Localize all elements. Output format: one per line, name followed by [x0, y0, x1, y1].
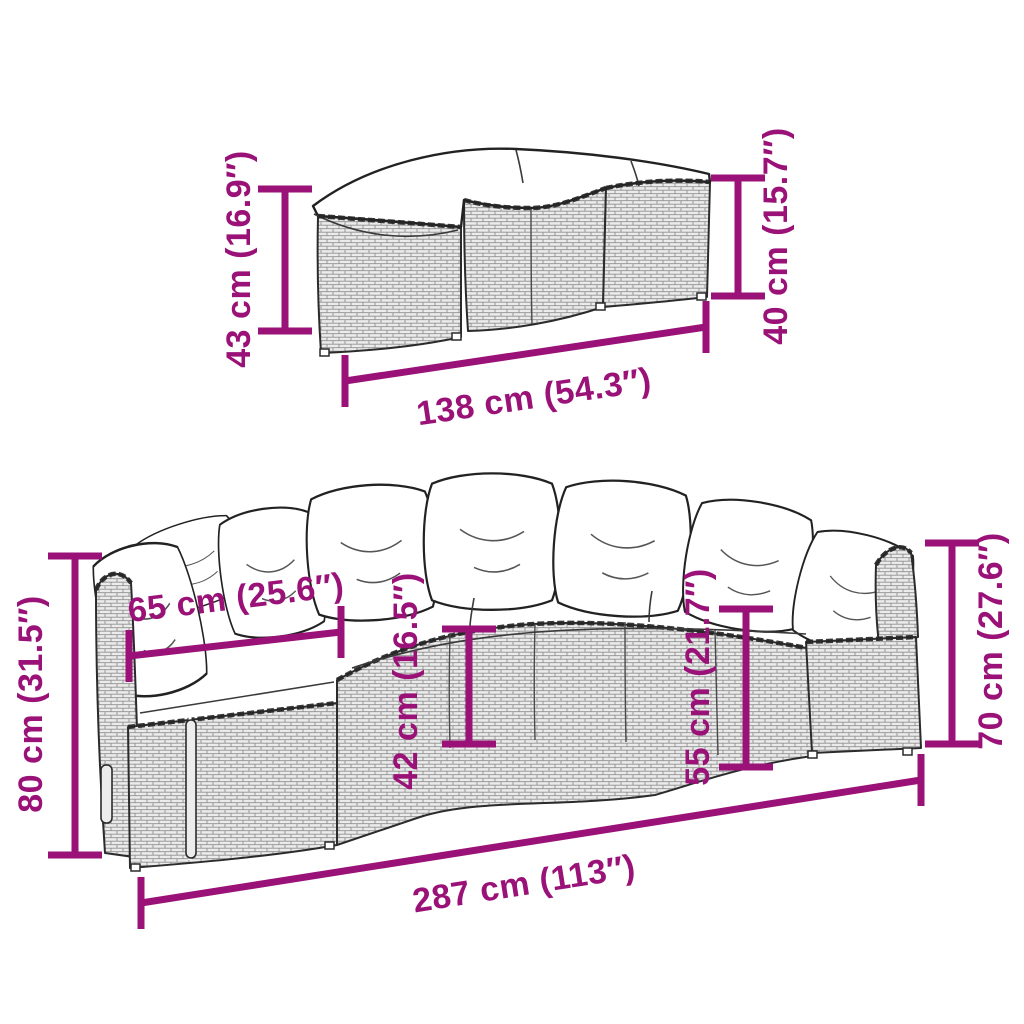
product-dimension-diagram: 43 cm (16.9″) 40 cm (15.7″) 138 cm (54.3… [0, 0, 1024, 1024]
sofa-foot [325, 842, 334, 849]
back-pillow [424, 473, 561, 609]
sofa-foot [808, 751, 817, 758]
dimension-label-43cm: 43 cm (16.9″) [220, 150, 258, 367]
top-module-foot [320, 349, 329, 356]
dimension-40cm: 40 cm (15.7″) [711, 127, 795, 344]
top-module-foot [452, 333, 461, 340]
top-module-right-wall [603, 181, 710, 307]
dimension-label-80cm: 80 cm (31.5″) [12, 595, 50, 812]
top-module-drawing [313, 149, 710, 356]
sofa-foot [903, 748, 912, 755]
top-module-left-wall [318, 216, 461, 353]
sofa-left-module [128, 703, 337, 868]
sofa-leg [186, 720, 196, 858]
dimension-70cm: 70 cm (27.6″) [925, 532, 1010, 749]
top-module-foot [697, 293, 706, 300]
sofa-foot [131, 864, 140, 871]
dimension-43cm: 43 cm (16.9″) [220, 150, 312, 367]
sofa-drawing [85, 473, 922, 871]
dimension-label-138cm: 138 cm (54.3″) [414, 361, 654, 434]
dimension-label-70cm: 70 cm (27.6″) [972, 532, 1010, 749]
sofa-leg [101, 765, 112, 823]
dimension-80cm: 80 cm (31.5″) [12, 556, 102, 855]
dimension-label-40cm: 40 cm (15.7″) [757, 127, 795, 344]
top-module-foot [596, 303, 605, 310]
sofa-right-module [806, 637, 921, 753]
dimension-label-55cm: 55 cm (21.7″) [679, 568, 717, 785]
back-pillow [549, 476, 695, 620]
dimension-label-42cm: 42 cm (16.5″) [387, 572, 425, 789]
